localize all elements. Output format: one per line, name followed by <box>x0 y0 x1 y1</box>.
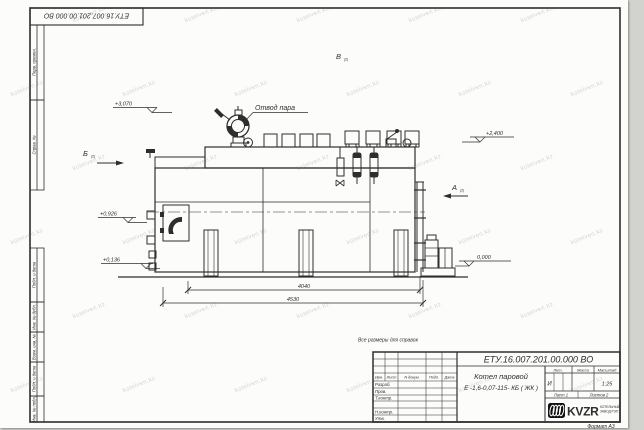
doc-number-stamp-rotated: ЕТУ.16.007.201.00.000 ВО <box>43 12 129 19</box>
company-logo: KVZR КОТЕЛЬНЫЙ ЗАВОД РЭП <box>548 403 621 419</box>
col-list: Лист <box>386 376 397 380</box>
margin-label-inv-dubl: Инв. № дубл. <box>32 304 37 330</box>
col-data: Дата <box>443 376 454 380</box>
scale-header: Масштаб <box>598 368 617 373</box>
margin-label-podp-data-1: Подп. и дата <box>32 261 37 288</box>
gauge-valve <box>336 180 344 186</box>
boiler-drum-casing <box>205 147 415 168</box>
view-sheet-ref-b: (2) <box>91 155 95 159</box>
view-sheet-ref-a: (2) <box>460 189 464 193</box>
margin-column-labels: Перв. примен. Справ. № Подп. и дата Инв.… <box>32 48 37 422</box>
title-doc-number: ЕТУ.16.007.201.00.000 ВО <box>484 355 593 365</box>
format-note: Формат А3 <box>587 424 615 430</box>
col-docnum: N докум. <box>404 376 419 380</box>
col-izm: Изм. <box>375 376 383 380</box>
drawing-sheet-stage: ЕТУ.16.007.201.00.000 ВО Перв. примен. С… <box>0 0 644 430</box>
dim-overall-length: 4530 <box>287 297 300 303</box>
view-marker-v: В (2) <box>336 52 348 62</box>
elevation-drum: +2,400 <box>486 131 504 137</box>
margin-label-inv-podl: Инв. № подл. <box>32 396 37 422</box>
boiler-front-top-block <box>155 157 205 168</box>
row-razrab: Разраб. <box>375 382 391 387</box>
engineering-drawing-svg: ЕТУ.16.007.201.00.000 ВО Перв. примен. С… <box>0 0 644 430</box>
boiler-body <box>155 168 415 272</box>
callout-leader-line <box>245 113 253 122</box>
row-nkontr: Н.контр. <box>375 410 393 415</box>
view-letter-v: В <box>336 52 341 61</box>
row-utv: Утв. <box>375 416 385 421</box>
lit-value: И <box>547 382 552 388</box>
right-standpipe <box>414 182 426 272</box>
steam-outlet-label: Отвод пара <box>255 104 295 112</box>
steam-outlet-callout: Отвод пара <box>245 104 308 121</box>
view-sheet-ref-v: (2) <box>344 58 348 62</box>
support-legs <box>204 230 408 276</box>
sheet-number: Лист 1 <box>553 393 568 398</box>
logo-text: KVZR <box>567 405 599 419</box>
valve-handwheel <box>214 108 224 118</box>
sheets-total: Листов 2 <box>589 393 609 398</box>
view-marker-a: А (2) <box>443 183 468 199</box>
drum-hatches-left <box>264 134 330 147</box>
col-podp: Подп. <box>429 376 439 380</box>
mass-header: Масса <box>577 368 590 373</box>
view-arrow-a <box>443 194 451 199</box>
product-name-line2: Е -1,6-0,07-115- КБ ( ЖК ) <box>464 385 538 392</box>
margin-label-podp-data-2: Подп. и дата <box>32 365 37 392</box>
row-prov: Пров. <box>375 389 386 394</box>
elevation-burner: +0,926 <box>100 212 118 218</box>
view-letter-a: А <box>451 183 457 192</box>
margin-column-cells <box>30 25 44 422</box>
drum-right-fitting <box>403 139 411 147</box>
view-letter-b: Б <box>83 149 88 158</box>
boiler-side-view <box>118 106 468 277</box>
lit-header: Лит. <box>552 368 562 373</box>
row-tkontr: Т.контр. <box>375 396 392 401</box>
front-top-valve <box>146 149 155 153</box>
elevation-top: +3,070 <box>115 102 133 108</box>
elevation-low: +0,136 <box>103 258 121 264</box>
scale-value: 1:25 <box>602 382 614 388</box>
reference-note: Все размеры для справок <box>358 338 419 344</box>
water-level-gauges <box>336 147 378 186</box>
burner-box <box>160 205 189 241</box>
burner-opening-arc <box>168 217 182 234</box>
margin-label-vzam-inv: Взам. инв. № <box>32 334 37 360</box>
view-arrow-b <box>116 161 124 166</box>
product-name-line1: Котел паровой <box>474 372 529 381</box>
dim-inner-length: 4040 <box>298 284 311 290</box>
company-name-line1: КОТЕЛЬНЫЙ <box>600 405 621 409</box>
title-block-header-cols: Изм. Лист N докум. Подп. Дата <box>375 376 455 380</box>
margin-label-sprav-no: Справ. № <box>32 135 37 154</box>
margin-label-perv-primen: Перв. примен. <box>32 48 37 76</box>
feed-pump-unit <box>421 235 455 276</box>
view-marker-b: Б (2) <box>83 149 124 166</box>
elevation-ground: 0,000 <box>477 255 492 261</box>
company-name-line2: ЗАВОД РЭП <box>600 410 619 414</box>
